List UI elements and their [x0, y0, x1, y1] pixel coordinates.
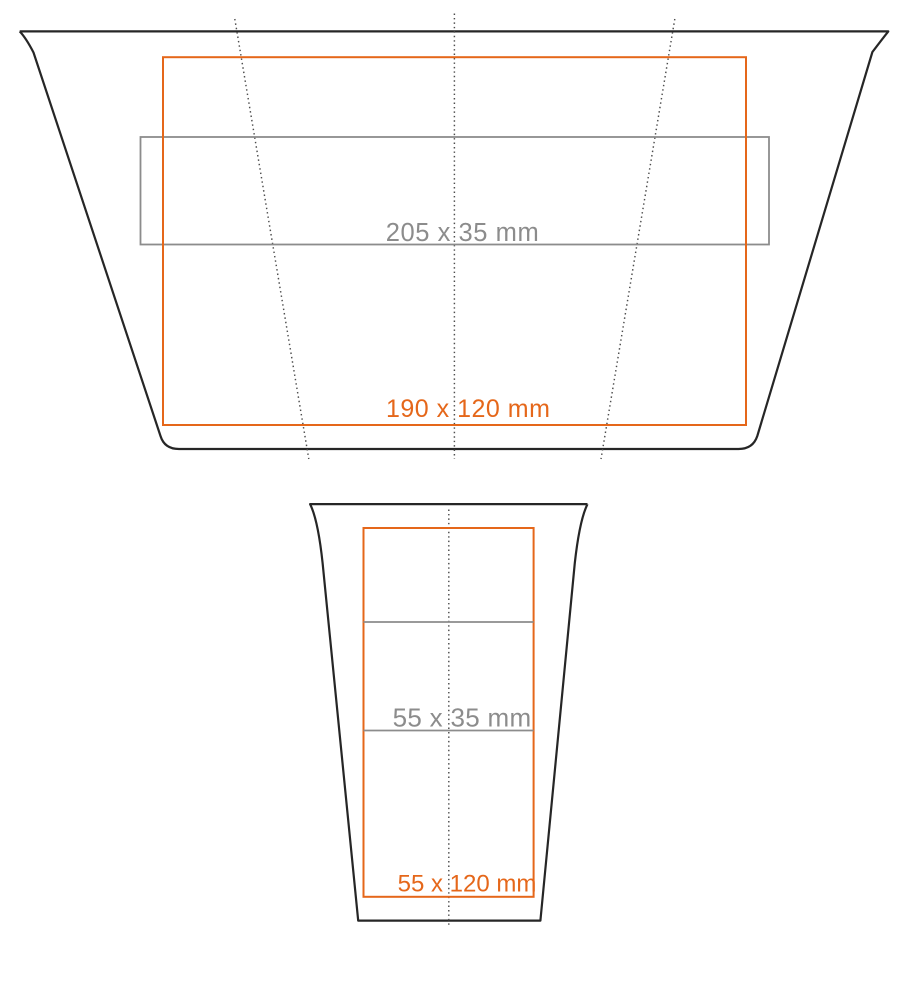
- svg-text:55 x 35 mm: 55 x 35 mm: [393, 703, 532, 733]
- svg-text:190 x 120 mm: 190 x 120 mm: [386, 395, 550, 423]
- svg-text:205 x 35 mm: 205 x 35 mm: [386, 219, 539, 247]
- svg-text:55 x 120 mm: 55 x 120 mm: [398, 871, 537, 898]
